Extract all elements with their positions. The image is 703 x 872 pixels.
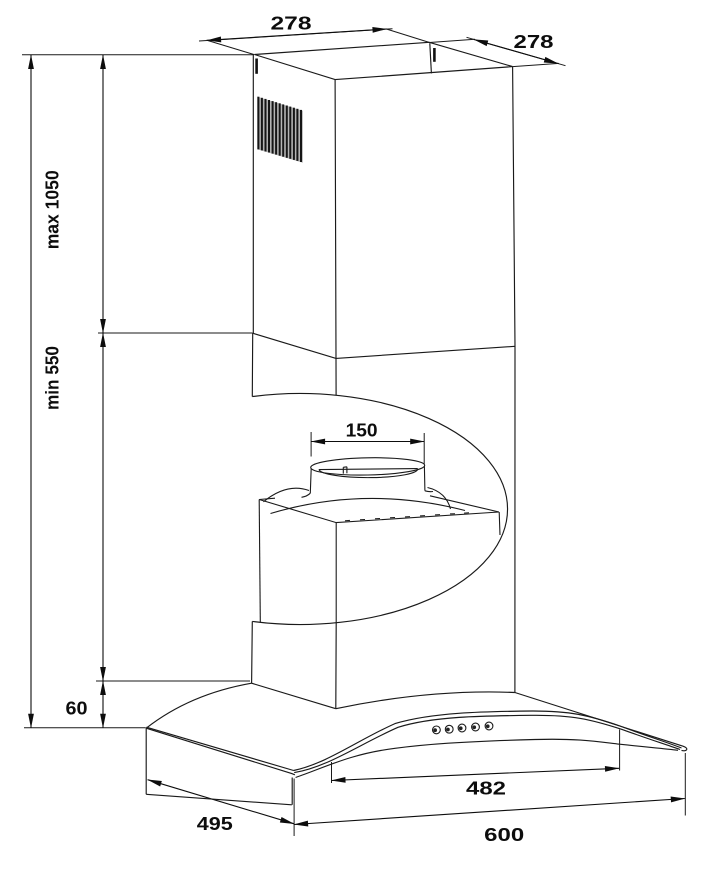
svg-text:60: 60: [66, 697, 88, 718]
svg-text:278: 278: [271, 13, 312, 34]
svg-text:600: 600: [484, 824, 524, 845]
svg-text:150: 150: [346, 419, 378, 440]
svg-text:482: 482: [466, 777, 506, 798]
svg-text:278: 278: [514, 31, 554, 52]
svg-text:max 1050: max 1050: [42, 170, 63, 249]
svg-text:min 550: min 550: [42, 346, 63, 410]
svg-text:495: 495: [197, 813, 233, 834]
